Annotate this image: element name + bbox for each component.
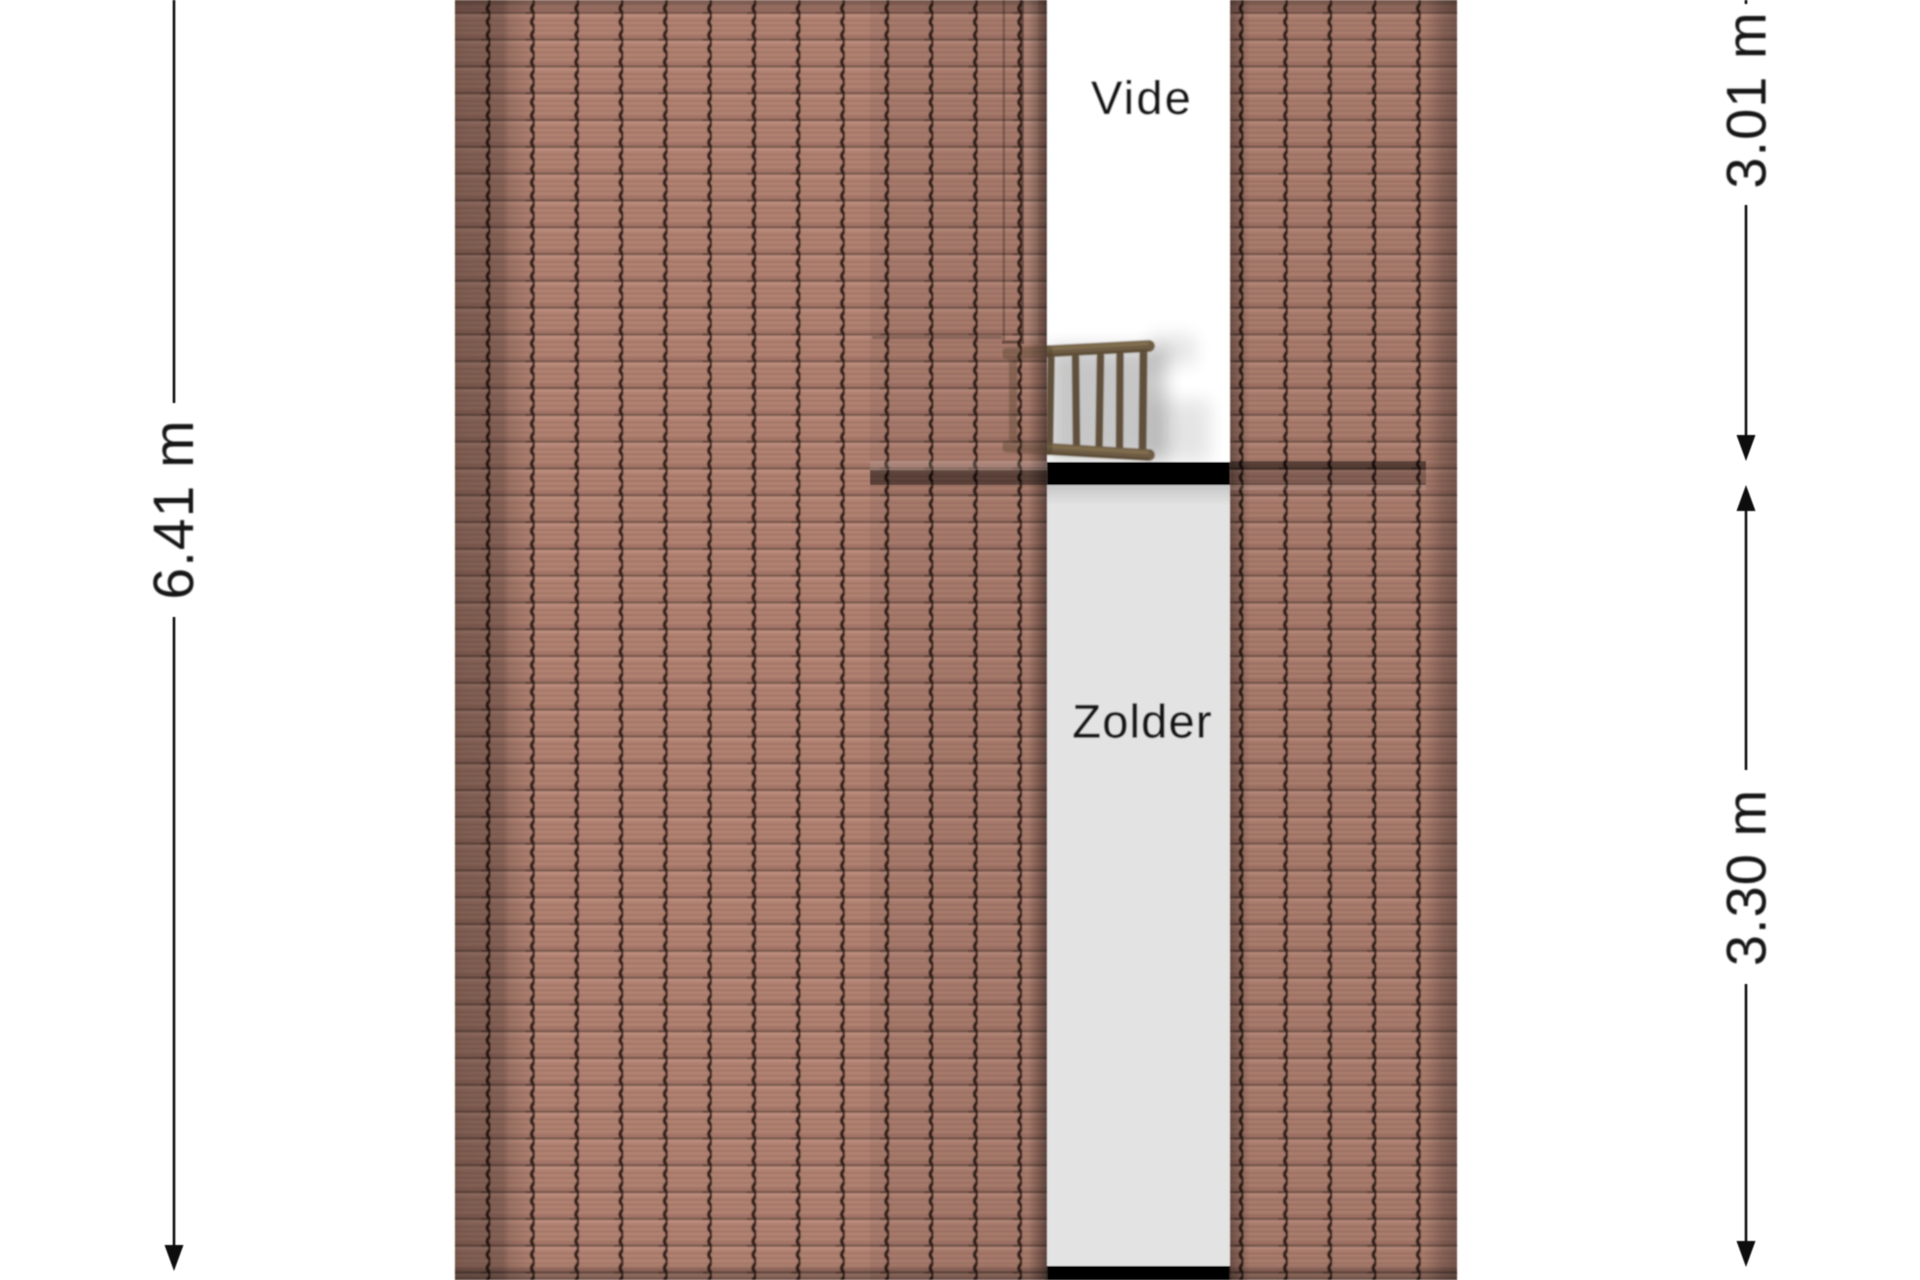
svg-text:3.30 m: 3.30 m	[1715, 789, 1778, 966]
svg-text:Zolder: Zolder	[1072, 695, 1212, 748]
svg-text:6.41 m: 6.41 m	[142, 419, 206, 599]
svg-text:Vide: Vide	[1091, 71, 1193, 124]
svg-text:3.01 m: 3.01 m	[1715, 11, 1778, 188]
